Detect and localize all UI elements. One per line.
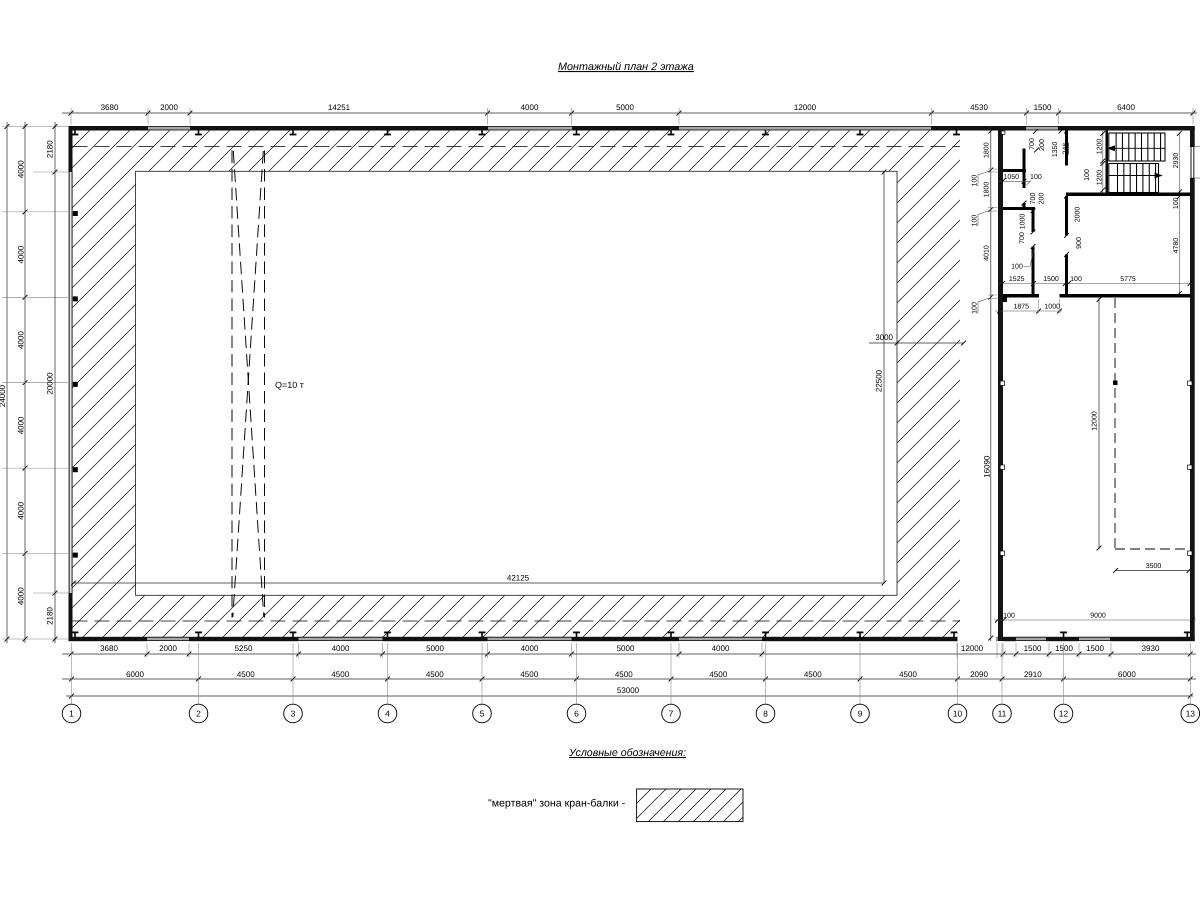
svg-text:4000: 4000: [17, 331, 26, 349]
svg-text:1800: 1800: [984, 182, 991, 198]
svg-text:12000: 12000: [1092, 411, 1099, 431]
svg-text:4: 4: [385, 709, 390, 719]
svg-text:4500: 4500: [615, 670, 633, 679]
svg-text:100: 100: [1003, 613, 1015, 620]
svg-text:4500: 4500: [426, 670, 444, 679]
svg-text:4010: 4010: [984, 245, 991, 261]
svg-text:4000: 4000: [712, 644, 730, 653]
svg-text:22500: 22500: [875, 369, 884, 392]
svg-text:5: 5: [480, 709, 485, 719]
svg-text:3000: 3000: [875, 333, 893, 342]
svg-text:4000: 4000: [17, 245, 26, 263]
svg-text:2910: 2910: [1024, 670, 1042, 679]
svg-text:4500: 4500: [520, 670, 538, 679]
svg-text:2: 2: [196, 709, 201, 719]
svg-text:7: 7: [669, 709, 674, 719]
svg-text:4000: 4000: [521, 644, 539, 653]
svg-text:5000: 5000: [617, 644, 635, 653]
svg-text:10: 10: [953, 709, 963, 719]
svg-text:1200: 1200: [1097, 170, 1104, 186]
svg-text:3500: 3500: [1146, 563, 1162, 570]
svg-text:4500: 4500: [331, 670, 349, 679]
svg-text:700: 700: [1030, 193, 1037, 205]
svg-text:20000: 20000: [46, 372, 55, 395]
svg-text:700: 700: [1029, 138, 1036, 150]
svg-text:1350: 1350: [1052, 142, 1059, 158]
svg-text:4000: 4000: [17, 160, 26, 178]
svg-text:100: 100: [1030, 174, 1042, 181]
svg-text:100: 100: [971, 215, 978, 227]
svg-text:4000: 4000: [332, 644, 350, 653]
svg-text:2090: 2090: [970, 670, 988, 679]
svg-text:12: 12: [1059, 709, 1069, 719]
svg-text:4000: 4000: [17, 501, 26, 519]
svg-text:4000: 4000: [17, 416, 26, 434]
svg-text:6: 6: [574, 709, 579, 719]
svg-text:6000: 6000: [126, 670, 144, 679]
svg-text:6400: 6400: [1117, 103, 1135, 112]
svg-text:Q=10 т: Q=10 т: [275, 380, 304, 390]
svg-text:100: 100: [1070, 276, 1082, 283]
svg-text:1050: 1050: [1004, 174, 1020, 181]
svg-text:1875: 1875: [1014, 304, 1030, 311]
svg-text:3: 3: [291, 709, 296, 719]
svg-text:12000: 12000: [794, 103, 817, 112]
svg-text:700: 700: [1019, 232, 1026, 244]
svg-text:4500: 4500: [709, 670, 727, 679]
svg-text:16090: 16090: [982, 455, 991, 478]
svg-text:100: 100: [1084, 169, 1091, 181]
svg-text:1500: 1500: [1034, 103, 1052, 112]
svg-text:200: 200: [1039, 139, 1046, 151]
svg-text:42125: 42125: [507, 574, 530, 583]
svg-text:24000: 24000: [0, 384, 7, 407]
svg-text:Условные обозначения:: Условные обозначения:: [568, 747, 686, 759]
svg-text:4500: 4500: [899, 670, 917, 679]
svg-text:2930: 2930: [1173, 153, 1180, 169]
svg-text:2180: 2180: [46, 140, 55, 158]
svg-text:"мертвая" зона кран-балки -: "мертвая" зона кран-балки -: [488, 798, 626, 810]
svg-text:100: 100: [971, 175, 978, 187]
svg-text:900: 900: [1076, 237, 1083, 249]
svg-text:2000: 2000: [1075, 207, 1082, 223]
svg-text:53000: 53000: [617, 686, 640, 695]
svg-text:100: 100: [971, 302, 978, 314]
svg-text:1500: 1500: [1024, 644, 1042, 653]
svg-text:3680: 3680: [101, 103, 119, 112]
svg-text:3680: 3680: [100, 644, 118, 653]
svg-text:4530: 4530: [970, 103, 988, 112]
svg-text:6000: 6000: [1118, 670, 1136, 679]
svg-text:9000: 9000: [1090, 613, 1106, 620]
svg-text:4000: 4000: [17, 587, 26, 605]
svg-text:200: 200: [1039, 193, 1046, 205]
svg-text:1200: 1200: [1097, 139, 1104, 155]
svg-text:3930: 3930: [1142, 644, 1160, 653]
svg-text:1: 1: [69, 709, 74, 719]
svg-text:13: 13: [1186, 709, 1196, 719]
svg-text:4500: 4500: [237, 670, 255, 679]
svg-text:11: 11: [998, 709, 1007, 719]
svg-text:Монтажный план 2 этажа: Монтажный план 2 этажа: [558, 61, 694, 73]
svg-text:2000: 2000: [159, 644, 177, 653]
svg-text:4000: 4000: [521, 103, 539, 112]
svg-text:12000: 12000: [961, 644, 984, 653]
svg-text:1800: 1800: [984, 142, 991, 158]
svg-text:8: 8: [763, 709, 768, 719]
svg-text:1500: 1500: [1086, 644, 1104, 653]
svg-text:5775: 5775: [1120, 276, 1136, 283]
svg-text:2180: 2180: [46, 607, 55, 625]
svg-text:2000: 2000: [160, 103, 178, 112]
svg-text:4500: 4500: [804, 670, 822, 679]
svg-text:1000: 1000: [1020, 214, 1027, 230]
svg-text:1000: 1000: [1044, 304, 1060, 311]
svg-text:1500: 1500: [1043, 276, 1059, 283]
svg-text:9: 9: [858, 709, 863, 719]
svg-text:4780: 4780: [1173, 238, 1180, 254]
svg-text:100: 100: [1011, 264, 1023, 271]
svg-text:5250: 5250: [235, 644, 253, 653]
svg-text:1500: 1500: [1055, 644, 1073, 653]
svg-text:100: 100: [1173, 197, 1180, 209]
svg-text:1525: 1525: [1009, 276, 1025, 283]
svg-text:5000: 5000: [426, 644, 444, 653]
svg-text:5000: 5000: [616, 103, 634, 112]
svg-text:14251: 14251: [328, 103, 351, 112]
